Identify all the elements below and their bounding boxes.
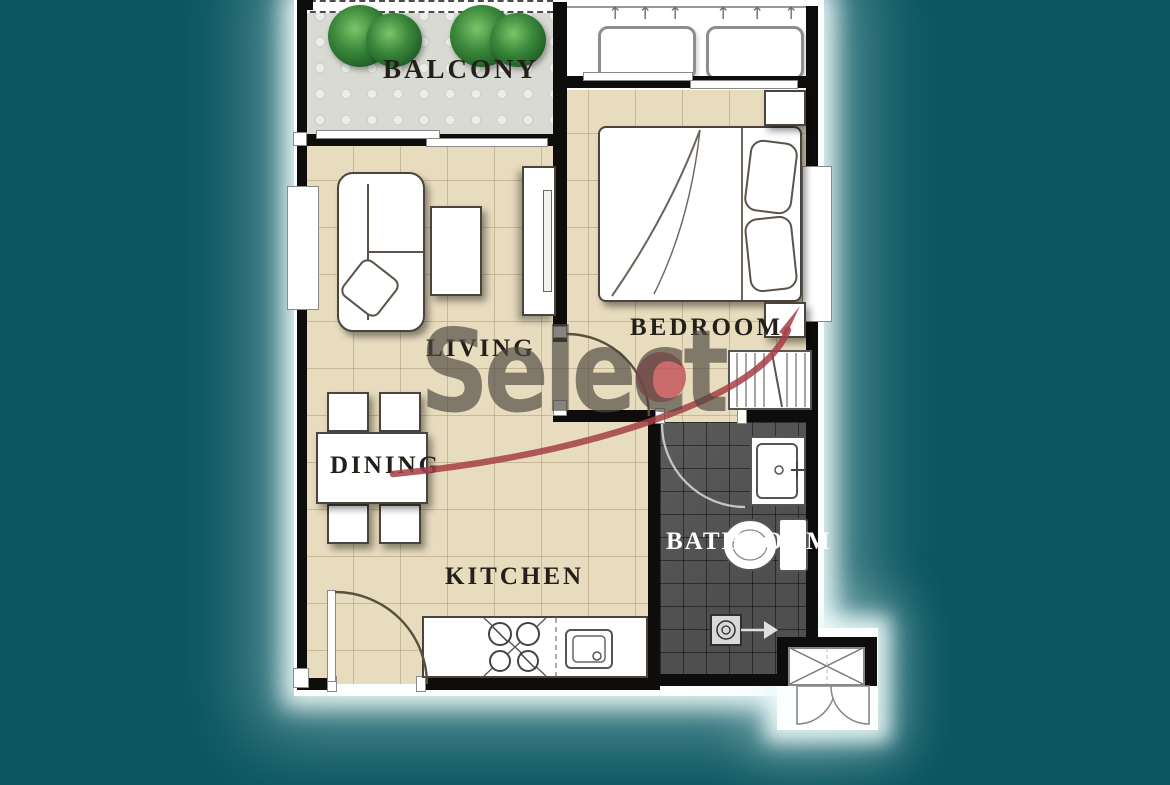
floorplan-screenshot: ↑ ↑ ↑ ↑ ↑ ↑ — [0, 0, 1170, 785]
watermark-text: Select — [420, 318, 724, 426]
